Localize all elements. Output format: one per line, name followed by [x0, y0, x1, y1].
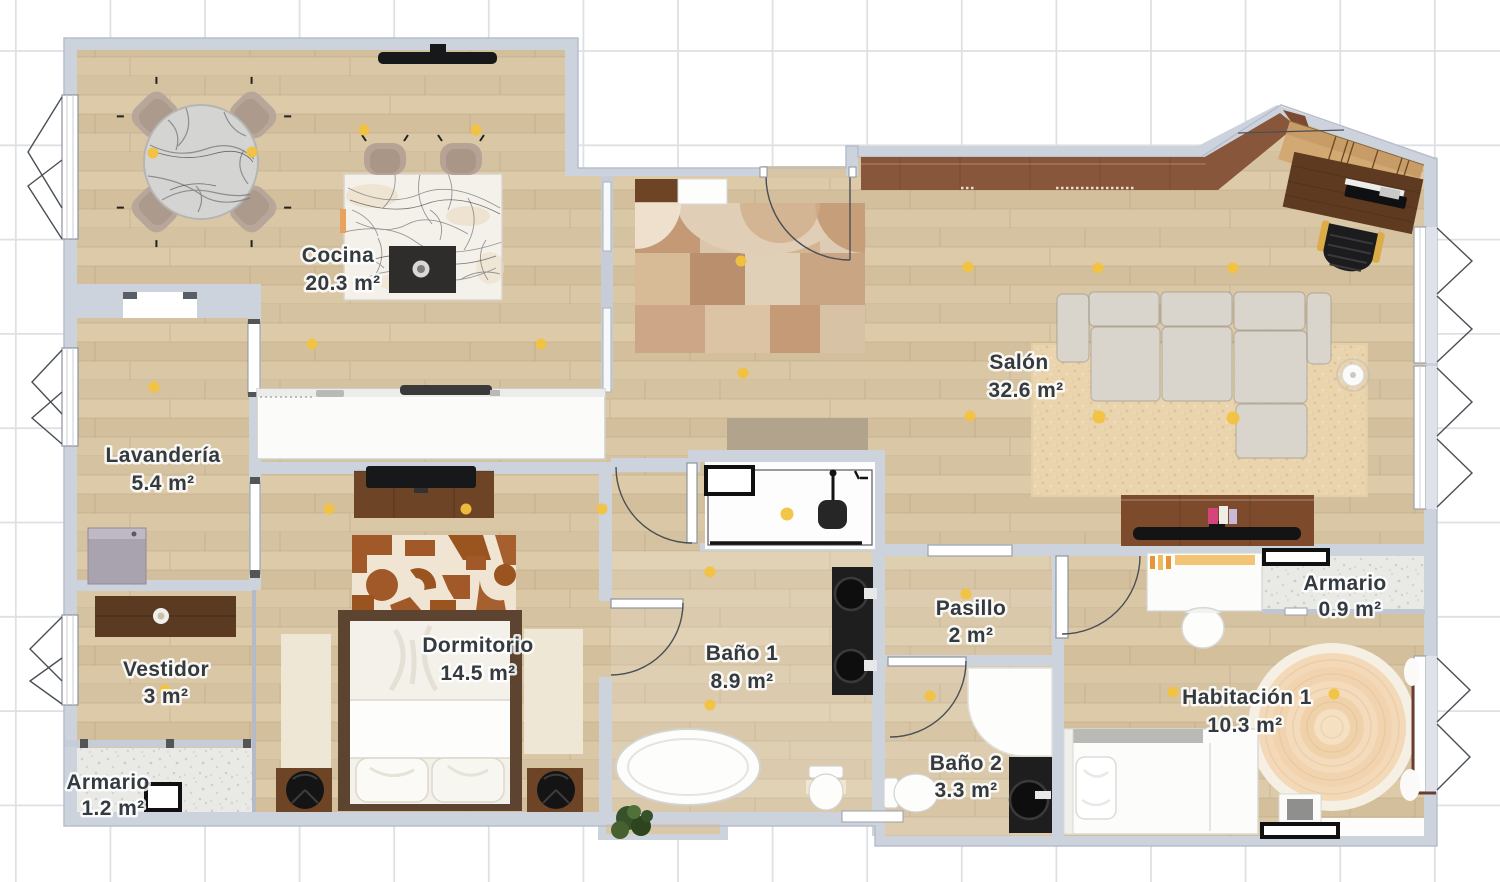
svg-text:5.4 m²: 5.4 m² [131, 472, 194, 495]
svg-text:20.3 m²: 20.3 m² [305, 272, 380, 295]
svg-text:0.9 m²: 0.9 m² [1318, 598, 1381, 621]
svg-text:Armario: Armario [66, 771, 149, 794]
svg-text:32.6 m²: 32.6 m² [988, 379, 1063, 402]
svg-text:Habitación 1: Habitación 1 [1182, 686, 1312, 709]
svg-text:Armario: Armario [1303, 572, 1386, 595]
svg-text:Pasillo: Pasillo [936, 597, 1007, 620]
svg-text:Vestidor: Vestidor [123, 658, 209, 681]
svg-text:Dormitorio: Dormitorio [422, 634, 533, 657]
svg-text:2 m²: 2 m² [949, 624, 994, 647]
svg-text:10.3 m²: 10.3 m² [1207, 714, 1282, 737]
svg-text:Lavandería: Lavandería [106, 444, 221, 467]
svg-text:1.2 m²: 1.2 m² [81, 797, 144, 820]
svg-text:3.3 m²: 3.3 m² [934, 779, 997, 802]
svg-text:3 m²: 3 m² [144, 685, 189, 708]
svg-text:8.9 m²: 8.9 m² [710, 670, 773, 693]
svg-text:Baño 1: Baño 1 [706, 642, 778, 665]
svg-text:14.5 m²: 14.5 m² [440, 662, 515, 685]
svg-text:Salón: Salón [989, 351, 1048, 374]
svg-text:Baño 2: Baño 2 [930, 752, 1002, 775]
svg-text:Cocina: Cocina [302, 244, 374, 267]
